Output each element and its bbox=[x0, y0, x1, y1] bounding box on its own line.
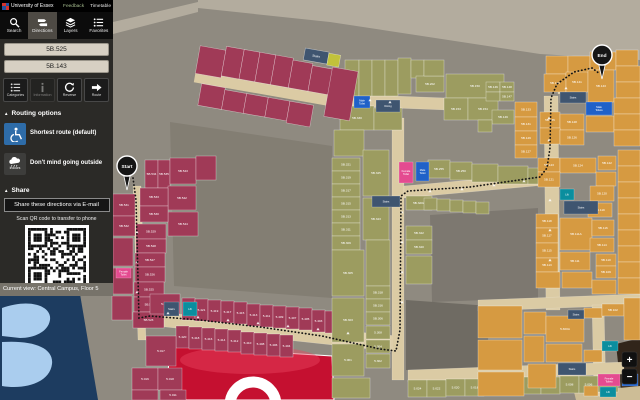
map-label: − bbox=[627, 372, 633, 383]
room-5B.118[interactable]: 5B.118 bbox=[536, 214, 558, 228]
map-label: 5.420 bbox=[179, 335, 187, 339]
room[interactable] bbox=[562, 272, 592, 288]
room-5.414[interactable]: 5.414 bbox=[215, 329, 228, 351]
room[interactable] bbox=[221, 90, 246, 114]
room-5B.305[interactable]: 5B.305 bbox=[332, 250, 364, 296]
room[interactable] bbox=[614, 114, 640, 130]
map-label: 5.416 bbox=[205, 337, 213, 341]
marker-stairs[interactable]: Stairs bbox=[560, 92, 586, 103]
sidebar-tabs: Search Directions Layers Favorites bbox=[0, 12, 113, 39]
marker-label: Lift bbox=[606, 390, 610, 394]
room-5B.320[interactable]: 5B.320 bbox=[406, 240, 432, 254]
map-label: 5B.120 bbox=[597, 192, 607, 196]
map-label: 5B.148 bbox=[502, 85, 512, 89]
indoors-caption: Indoors bbox=[10, 167, 21, 170]
map-label: 5B.316 bbox=[373, 304, 383, 308]
room[interactable] bbox=[476, 202, 489, 214]
room-5.409[interactable]: 5.409 bbox=[273, 306, 286, 328]
marker-male-toilet[interactable]: MaleToilet bbox=[354, 96, 370, 108]
route-arrow-icon bbox=[91, 82, 102, 93]
room-5B.111[interactable]: 5B.111 bbox=[560, 252, 590, 270]
room-5B.116[interactable]: 5B.116 bbox=[592, 220, 614, 236]
map-label: 5.417 bbox=[224, 310, 232, 314]
map-label: 5.001 bbox=[344, 358, 352, 362]
room-5.411[interactable]: 5.411 bbox=[260, 305, 273, 327]
room-5B.542[interactable]: 5B.542 bbox=[168, 186, 196, 210]
room[interactable] bbox=[327, 53, 341, 67]
room[interactable] bbox=[584, 386, 598, 396]
map-label: 5B.530 bbox=[149, 212, 159, 216]
information-button[interactable]: Information bbox=[30, 78, 55, 102]
room-5B.153[interactable]: 5B.153 bbox=[444, 98, 468, 120]
room-5B.315[interactable]: 5B.315 bbox=[332, 197, 360, 210]
map-label: 5B.303 bbox=[343, 318, 353, 322]
map-label: 5.421 bbox=[198, 308, 206, 312]
room-5B.117[interactable]: 5B.117 bbox=[536, 228, 558, 243]
room[interactable] bbox=[385, 60, 398, 96]
room[interactable] bbox=[463, 201, 476, 213]
room-5B.109[interactable]: 5B.109 bbox=[596, 266, 616, 278]
room-5B.317[interactable]: 5B.317 bbox=[332, 184, 360, 197]
collapse-triangle-icon: ▲ bbox=[4, 188, 8, 193]
qr-hint-text: Scan QR code to transfer to phone bbox=[0, 216, 113, 222]
going-outside-label: Don't mind going outside bbox=[30, 160, 102, 168]
map-label: 5B.317 bbox=[341, 189, 351, 193]
room-5B.531[interactable]: 5B.531 bbox=[113, 194, 135, 216]
marker-male-toilet[interactable]: MaleToilet bbox=[416, 162, 429, 181]
room-5B.530[interactable]: 5B.530 bbox=[140, 206, 168, 222]
routing-options-title: Routing options bbox=[11, 110, 61, 117]
room-5B.128[interactable]: 5B.128 bbox=[560, 114, 584, 130]
room-5.415[interactable]: 5.415 bbox=[234, 302, 247, 324]
room-5B.533[interactable]: 5B.533 bbox=[140, 188, 168, 206]
map-label: 5B.122 bbox=[602, 161, 612, 165]
room[interactable] bbox=[424, 60, 444, 76]
map-label: 5.418 bbox=[192, 336, 200, 340]
room[interactable] bbox=[546, 344, 582, 362]
corridor bbox=[392, 118, 404, 380]
room[interactable] bbox=[411, 60, 424, 78]
room-5.022[interactable]: 5.022 bbox=[427, 380, 446, 397]
marker-dining[interactable]: Dining bbox=[376, 100, 400, 112]
room[interactable] bbox=[332, 378, 370, 398]
room[interactable] bbox=[450, 200, 463, 212]
tab-favorites[interactable]: Favorites bbox=[85, 12, 113, 39]
categories-button[interactable]: Categories bbox=[3, 78, 28, 102]
map-label: 5B.531 bbox=[119, 203, 129, 207]
room[interactable] bbox=[406, 256, 432, 284]
option-shortest-route[interactable]: Shortest route (default) bbox=[0, 119, 113, 149]
room-5B.306[interactable]: 5B.306 bbox=[366, 312, 390, 325]
room[interactable] bbox=[584, 308, 602, 318]
room-5.420[interactable]: 5.420 bbox=[176, 326, 189, 348]
tab-layers[interactable]: Layers bbox=[57, 12, 85, 39]
room-5B.120[interactable]: 5B.120 bbox=[590, 186, 614, 201]
room[interactable] bbox=[243, 94, 268, 118]
map-label: 5B.255 bbox=[434, 167, 444, 171]
feedback-link[interactable]: Feedback bbox=[63, 4, 84, 9]
room-5B.534[interactable]: 5B.534 bbox=[145, 160, 158, 188]
room[interactable] bbox=[586, 116, 614, 132]
map-label: 5B.313 bbox=[341, 215, 351, 219]
map-label: 5B.319 bbox=[341, 176, 351, 180]
room[interactable] bbox=[536, 272, 560, 288]
map-label: 5B.543 bbox=[178, 169, 188, 173]
room[interactable] bbox=[286, 101, 313, 127]
room[interactable] bbox=[618, 166, 640, 182]
room-5.408[interactable]: 5.408 bbox=[254, 333, 267, 355]
map-label: 5B.143 bbox=[596, 84, 606, 88]
room-5B.123[interactable]: 5B.123 bbox=[538, 158, 560, 172]
marker-female-toilet[interactable]: FemaleToilet bbox=[399, 162, 413, 183]
map-label: 5.018 bbox=[471, 386, 479, 390]
marker-male-toilets[interactable]: MaleToilets bbox=[586, 102, 612, 115]
room[interactable] bbox=[618, 262, 640, 278]
marker-lift[interactable]: Lift bbox=[600, 387, 616, 397]
shortest-route-label: Shortest route (default) bbox=[30, 130, 96, 138]
map-label: 5B.309 bbox=[341, 241, 351, 245]
room[interactable] bbox=[616, 50, 638, 66]
map-label: 5B.123 bbox=[544, 163, 554, 167]
room-5B.126[interactable]: 5B.126 bbox=[560, 130, 584, 145]
map-label: 5.017 bbox=[157, 349, 165, 353]
zoom-in-button[interactable]: + bbox=[622, 352, 637, 367]
tool-label: Information bbox=[34, 94, 52, 98]
room[interactable] bbox=[618, 150, 640, 166]
map-label: 5B.542 bbox=[177, 196, 187, 200]
room-5.304[interactable]: 5.304 bbox=[366, 340, 390, 353]
room-5.404[interactable]: 5.404 bbox=[280, 335, 293, 357]
map-label: 5B.311 bbox=[341, 228, 351, 232]
app-header: University of Essex Feedback Timetable bbox=[0, 0, 113, 12]
room-5B.313[interactable]: 5B.313 bbox=[332, 210, 360, 223]
marker-label: Lift bbox=[608, 344, 612, 348]
room-5B.122[interactable]: 5B.122 bbox=[598, 156, 616, 170]
room-5.405[interactable]: 5.405 bbox=[299, 308, 312, 330]
marker-lift[interactable]: Lift bbox=[560, 189, 574, 200]
room-5.016[interactable]: 5.016 bbox=[132, 368, 158, 390]
room-5.018[interactable]: 5.018 bbox=[158, 368, 182, 390]
marker-label: Dining bbox=[384, 104, 392, 108]
room-5.416[interactable]: 5.416 bbox=[202, 328, 215, 350]
room-5.412[interactable]: 5.412 bbox=[228, 330, 241, 352]
layers-icon bbox=[65, 17, 76, 28]
map-label: 5B.527 bbox=[145, 258, 155, 262]
map-label: 5B.306 bbox=[373, 317, 383, 321]
room-5.001[interactable]: 5.001 bbox=[332, 344, 364, 376]
room[interactable] bbox=[265, 97, 290, 121]
route-to-input[interactable] bbox=[4, 60, 109, 73]
room[interactable] bbox=[366, 240, 390, 286]
marker-label: MaleToilet bbox=[359, 99, 365, 106]
room[interactable] bbox=[618, 214, 640, 230]
room-5B.114[interactable]: 5B.114 bbox=[590, 238, 614, 252]
zoom-out-button[interactable]: − bbox=[622, 369, 637, 384]
map-label: 5B.154 bbox=[478, 107, 488, 111]
room-5B.111A[interactable]: 5B.111A bbox=[560, 218, 592, 250]
room-5B.129[interactable]: 5B.129 bbox=[515, 131, 537, 145]
room-5B.124[interactable]: 5B.124 bbox=[560, 158, 596, 173]
room[interactable] bbox=[592, 280, 616, 294]
map-label: 5.419 bbox=[211, 309, 219, 313]
room-5B.543[interactable]: 5B.543 bbox=[170, 158, 196, 184]
room-5.308[interactable]: 5.308 bbox=[366, 326, 390, 339]
map-label: 5.016 bbox=[141, 377, 149, 381]
room-5B.133[interactable]: 5B.133 bbox=[515, 102, 537, 117]
map-label: 5B.529 bbox=[146, 230, 156, 234]
tab-label: Directions bbox=[32, 29, 52, 34]
courtyard-east bbox=[430, 208, 538, 302]
map-label: 5B.111A bbox=[570, 232, 582, 236]
map-label: 5.414 bbox=[218, 338, 226, 342]
room-5.008[interactable]: 5.008 bbox=[560, 376, 579, 393]
map-label: 5B.330 bbox=[352, 116, 362, 120]
tools-row: Categories Information Reverse Route bbox=[0, 73, 113, 102]
marker-label: Stairs bbox=[578, 206, 585, 210]
room-5B.526[interactable]: 5B.526 bbox=[135, 267, 165, 282]
room-5B.535[interactable]: 5B.535 bbox=[158, 160, 170, 188]
map-label: 5B.102 bbox=[608, 308, 618, 312]
room[interactable] bbox=[113, 238, 133, 266]
room-5B.250[interactable]: 5B.250 bbox=[450, 162, 472, 180]
room[interactable] bbox=[624, 298, 640, 340]
room[interactable] bbox=[546, 56, 568, 74]
room-5B.131[interactable]: 5B.131 bbox=[515, 117, 537, 131]
room-5B.147[interactable]: 5B.147 bbox=[500, 92, 514, 101]
room[interactable] bbox=[614, 98, 640, 114]
room[interactable] bbox=[112, 296, 132, 320]
room[interactable] bbox=[372, 60, 385, 96]
room-5.300A[interactable]: 5.300A bbox=[546, 316, 584, 342]
room[interactable] bbox=[359, 60, 372, 96]
map-label: 5.406 bbox=[270, 343, 278, 347]
room-5B.113[interactable]: 5B.113 bbox=[536, 258, 558, 272]
map-label: 5.415 bbox=[237, 311, 245, 315]
room-5B.309[interactable]: 5B.309 bbox=[332, 236, 360, 250]
room[interactable] bbox=[486, 92, 500, 101]
map-label: 5.008 bbox=[566, 383, 574, 387]
map-label: 5.302 bbox=[374, 359, 382, 363]
room-5B.316[interactable]: 5B.316 bbox=[366, 299, 390, 312]
room-5.410[interactable]: 5.410 bbox=[241, 332, 254, 354]
room-5.020[interactable]: 5.020 bbox=[446, 379, 465, 396]
favorites-list-icon bbox=[93, 17, 104, 28]
room-5B.127[interactable]: 5B.127 bbox=[515, 145, 537, 158]
marker-stairs[interactable]: Stairs bbox=[372, 196, 400, 207]
room[interactable] bbox=[614, 130, 640, 146]
marker-lift[interactable]: Lift bbox=[183, 302, 197, 316]
map-label: 5B.150 bbox=[470, 84, 480, 88]
room-5B.529[interactable]: 5B.529 bbox=[136, 224, 166, 239]
marker-stairs[interactable]: Stairs bbox=[164, 302, 179, 316]
map-label: 5B.118 bbox=[542, 219, 552, 223]
map-label: 5B.325 bbox=[371, 171, 381, 175]
share-email-button[interactable]: Share these directions via E-mail bbox=[4, 198, 110, 212]
room-5B.115[interactable]: 5B.115 bbox=[536, 243, 558, 258]
map-label: 5.412 bbox=[231, 339, 239, 343]
collapse-triangle-icon: ▲ bbox=[4, 111, 8, 116]
reverse-route-button[interactable]: Reverse bbox=[57, 78, 82, 102]
room-5.419[interactable]: 5.419 bbox=[208, 300, 221, 322]
map-label: 5B.149 bbox=[498, 115, 508, 119]
room-5B.319[interactable]: 5B.319 bbox=[332, 171, 360, 184]
room-5B.322[interactable]: 5B.322 bbox=[406, 226, 432, 240]
marker-label: MaleToilet bbox=[419, 168, 425, 175]
marker-lift[interactable]: Lift bbox=[602, 341, 618, 351]
room[interactable] bbox=[524, 312, 546, 334]
room-5B.325[interactable]: 5B.325 bbox=[363, 150, 389, 196]
room-5B.311[interactable]: 5B.311 bbox=[332, 223, 360, 236]
room[interactable] bbox=[618, 182, 640, 198]
room[interactable] bbox=[424, 198, 437, 210]
room[interactable] bbox=[618, 246, 640, 262]
room[interactable] bbox=[478, 120, 492, 132]
room[interactable] bbox=[596, 172, 616, 186]
room-5B.148[interactable]: 5B.148 bbox=[500, 82, 514, 92]
map-label: 5.409 bbox=[276, 315, 284, 319]
map-label: 5.011 bbox=[169, 393, 177, 397]
brand-title[interactable]: University of Essex bbox=[11, 3, 54, 9]
map-label: 5.413 bbox=[250, 313, 258, 317]
room[interactable] bbox=[528, 364, 556, 388]
map-label: 5B.114 bbox=[597, 243, 607, 247]
room-5.017[interactable]: 5.017 bbox=[146, 336, 176, 366]
room-5B.110[interactable]: 5B.110 bbox=[596, 254, 616, 266]
map-label: 5B.111 bbox=[570, 259, 580, 263]
room-5.024[interactable]: 5.024 bbox=[408, 380, 427, 397]
map-label: 5.020 bbox=[452, 386, 460, 390]
map-label: Start bbox=[122, 164, 133, 170]
map-label: 5B.250 bbox=[456, 169, 466, 173]
marker-label: Lift bbox=[565, 193, 569, 197]
room[interactable] bbox=[472, 164, 498, 182]
room[interactable] bbox=[398, 58, 411, 94]
share-header[interactable]: ▲ Share bbox=[0, 179, 113, 196]
map-label: 5B.147 bbox=[502, 95, 512, 99]
marker-stairs[interactable]: Stairs bbox=[564, 201, 598, 214]
map-label: 5B.202 bbox=[425, 82, 435, 86]
option-going-outside[interactable]: Indoors Don't mind going outside bbox=[0, 149, 113, 179]
room[interactable] bbox=[132, 390, 158, 400]
categories-icon bbox=[10, 82, 21, 93]
room-5B.102[interactable]: 5B.102 bbox=[602, 304, 624, 316]
room-5.011[interactable]: 5.011 bbox=[160, 390, 186, 400]
room[interactable] bbox=[584, 350, 602, 362]
essex-logo[interactable] bbox=[2, 3, 9, 10]
room-5B.149[interactable]: 5B.149 bbox=[492, 110, 514, 124]
marker-female-toilets[interactable]: FemaleToilets bbox=[598, 374, 620, 386]
marker-stairs[interactable]: Stairs bbox=[558, 363, 586, 375]
timetable-link[interactable]: Timetable bbox=[90, 4, 111, 9]
routing-options-header[interactable]: ▲ Routing options bbox=[0, 102, 113, 119]
map-label: 5B.116 bbox=[598, 226, 608, 230]
room-5B.318[interactable]: 5B.318 bbox=[366, 286, 390, 299]
qr-code-image bbox=[28, 228, 86, 286]
room-5B.528[interactable]: 5B.528 bbox=[136, 239, 166, 253]
map-label: 5B.110 bbox=[601, 258, 611, 262]
map-label: 5B.315 bbox=[341, 202, 351, 206]
map-label: 5B.526 bbox=[145, 273, 155, 277]
room-5B.527[interactable]: 5B.527 bbox=[135, 253, 165, 267]
current-view-status: Current view: Central Campus, Floor 5 bbox=[0, 283, 113, 296]
room-5B.202[interactable]: 5B.202 bbox=[416, 76, 444, 92]
map-label: 5.018 bbox=[166, 377, 174, 381]
room[interactable] bbox=[618, 198, 640, 214]
map-label: 5B.128 bbox=[567, 120, 577, 124]
map-label: 5B.115 bbox=[542, 249, 552, 253]
map-label: 5B.124 bbox=[573, 164, 583, 168]
map-label: 5B.131 bbox=[521, 122, 531, 126]
map-label: 5.408 bbox=[257, 342, 265, 346]
room[interactable] bbox=[437, 199, 450, 211]
map-label: 5B.323 bbox=[371, 217, 381, 221]
directions-panel: University of Essex Feedback Timetable S… bbox=[0, 0, 113, 296]
route-button[interactable]: Route bbox=[84, 78, 109, 102]
marker-label: FemaleToilets bbox=[605, 377, 614, 384]
map-label: 5B.117 bbox=[542, 234, 552, 238]
map-label: 5B.322 bbox=[414, 231, 424, 235]
wheelchair-icon bbox=[4, 123, 26, 145]
map-label: 5.405 bbox=[302, 317, 310, 321]
room-5.302[interactable]: 5.302 bbox=[366, 354, 390, 368]
map-label: 5.411 bbox=[263, 314, 271, 318]
map-label: 5B.318 bbox=[373, 291, 383, 295]
marker-female-toilet[interactable]: FemaleToilet bbox=[116, 268, 131, 278]
room[interactable] bbox=[524, 336, 544, 362]
map-label: 5.024 bbox=[414, 387, 422, 391]
room-5B.321[interactable]: 5B.321 bbox=[332, 158, 360, 171]
room[interactable] bbox=[616, 66, 640, 82]
room[interactable] bbox=[195, 46, 225, 78]
room-5.406[interactable]: 5.406 bbox=[267, 334, 280, 356]
room[interactable] bbox=[478, 340, 522, 370]
room-5B.532[interactable]: 5B.532 bbox=[113, 216, 135, 236]
marker-label: Stairs bbox=[168, 307, 175, 311]
map-label: 5B.320 bbox=[414, 245, 424, 249]
map-label: 5B.127 bbox=[521, 150, 531, 154]
room-5B.303[interactable]: 5B.303 bbox=[332, 298, 364, 342]
room[interactable] bbox=[334, 130, 364, 156]
room-5B.255[interactable]: 5B.255 bbox=[428, 160, 450, 178]
map-label: 5B.533 bbox=[149, 195, 159, 199]
room[interactable] bbox=[616, 82, 640, 98]
marker-label: Stairs bbox=[569, 367, 576, 371]
map-label: 5B.129 bbox=[521, 136, 531, 140]
room[interactable] bbox=[196, 156, 216, 180]
room[interactable] bbox=[478, 306, 522, 338]
reverse-icon bbox=[64, 82, 75, 93]
room-5.418[interactable]: 5.418 bbox=[189, 327, 202, 349]
room-5B.523[interactable]: 5B.523 bbox=[133, 312, 164, 328]
map-label: 5B.139 bbox=[550, 81, 560, 85]
tab-directions[interactable]: Directions bbox=[28, 12, 56, 39]
map-label: 5B.525 bbox=[144, 288, 154, 292]
room-5B.544[interactable]: 5B.544 bbox=[168, 212, 198, 236]
tab-search[interactable]: Search bbox=[0, 12, 28, 39]
room[interactable] bbox=[618, 278, 640, 294]
room[interactable] bbox=[478, 372, 524, 396]
map-label: + bbox=[627, 355, 633, 366]
map-label: 5B.133 bbox=[521, 108, 531, 112]
tool-label: Reverse bbox=[63, 94, 76, 98]
marker-stairs[interactable]: Stairs bbox=[568, 310, 584, 319]
room[interactable] bbox=[198, 84, 225, 110]
map-label: 5B.146 bbox=[488, 85, 498, 89]
room-5B.146[interactable]: 5B.146 bbox=[486, 82, 500, 92]
room[interactable] bbox=[618, 230, 640, 246]
map-label: 5B.305 bbox=[343, 271, 353, 275]
route-from-input[interactable] bbox=[4, 43, 109, 56]
